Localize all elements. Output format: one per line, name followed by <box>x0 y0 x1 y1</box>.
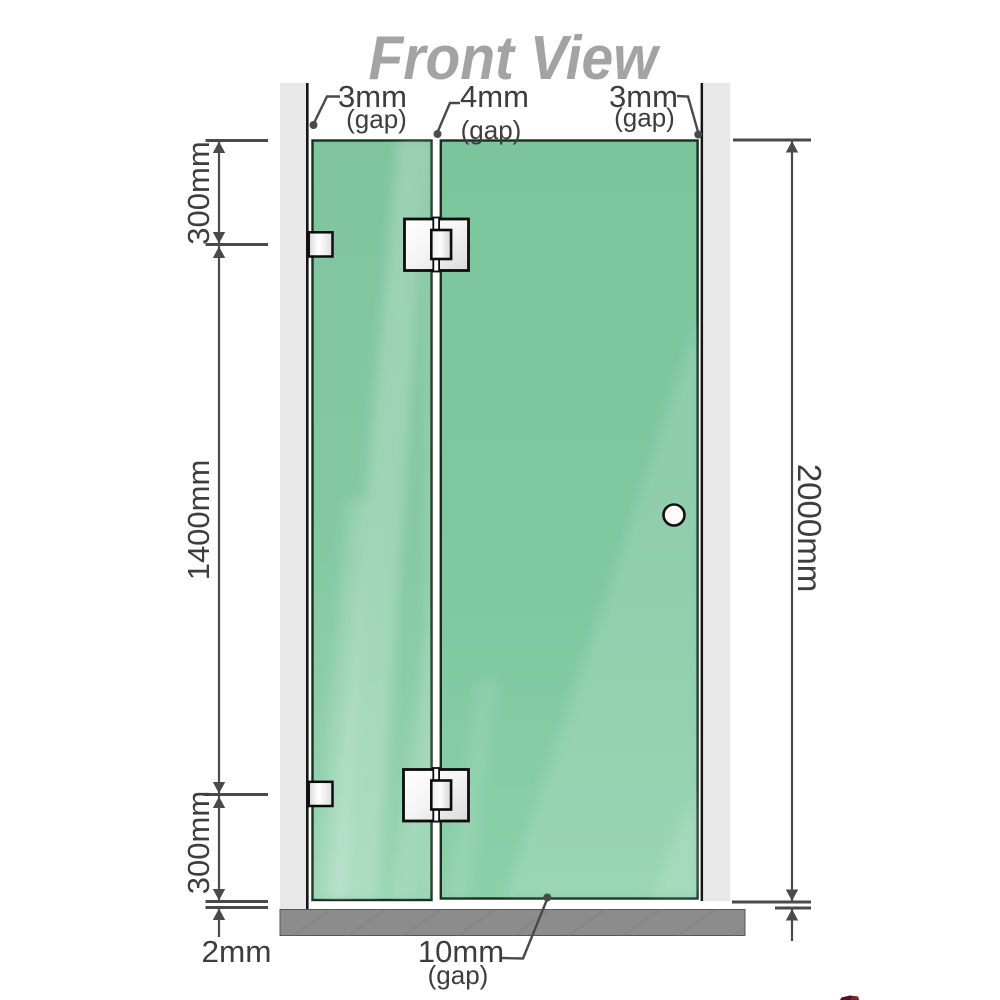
svg-text:(gap): (gap) <box>346 104 407 134</box>
svg-text:1400mm: 1400mm <box>181 460 216 581</box>
svg-text:(gap): (gap) <box>428 960 489 990</box>
svg-text:2mm: 2mm <box>202 934 272 969</box>
svg-text:(gap): (gap) <box>614 103 675 133</box>
svg-text:(gap): (gap) <box>461 115 522 145</box>
svg-text:4mm: 4mm <box>460 79 529 114</box>
svg-text:300mm: 300mm <box>181 141 216 244</box>
svg-text:300mm: 300mm <box>181 791 216 894</box>
svg-text:2000mm: 2000mm <box>791 464 828 592</box>
